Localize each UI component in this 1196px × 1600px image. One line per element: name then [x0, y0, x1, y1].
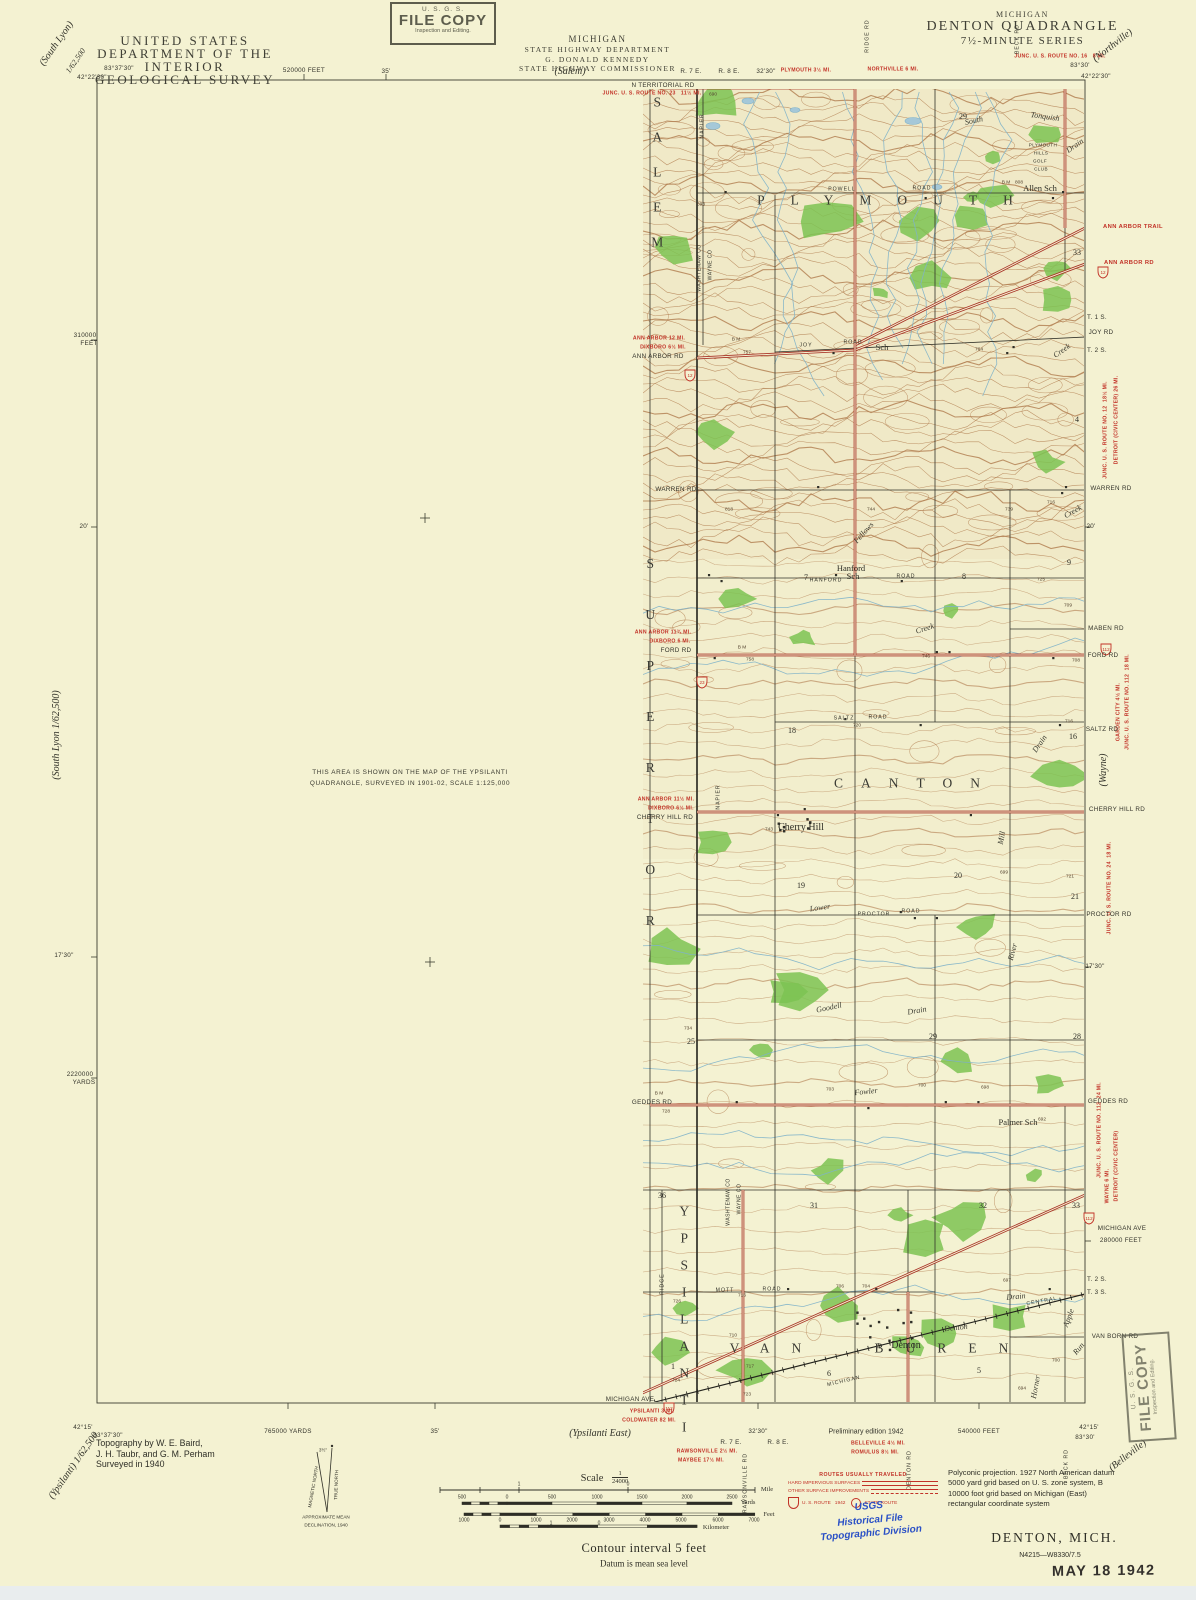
- map-label-1: 1: [550, 1522, 553, 1527]
- map-label-692: 692: [1038, 1119, 1046, 1124]
- map-label-ann-arbor-12-mi-: ANN ARBOR 12 MI.: [633, 336, 685, 341]
- legend-solid-line: [862, 1481, 938, 1486]
- map-label-maben-rd: MABEN RD: [1088, 626, 1124, 632]
- map-label-7000: 7000: [748, 1519, 759, 1524]
- map-label--ypsilanti-1-62-500: (Ypsilanti) 1/62,500: [47, 1431, 101, 1502]
- map-label-35-: 35': [381, 69, 390, 75]
- map-label-33: 33: [1072, 1202, 1080, 1210]
- map-label-maybee-17-mi-: MAYBEE 17½ MI.: [678, 1458, 724, 1463]
- map-label-van-buren: VAN BUREN: [730, 1341, 1031, 1355]
- map-label-kilometer: Kilometer: [703, 1525, 729, 1532]
- map-sheet: 122312112112112 83°37'30"42°22'30"520000…: [0, 0, 1196, 1600]
- map-label-698: 698: [981, 1087, 989, 1092]
- agency-header: UNITED STATES DEPARTMENT OF THE INTERIOR…: [70, 34, 300, 86]
- map-label-694: 694: [1018, 1388, 1026, 1393]
- map-label-83-30-: 83°30': [1070, 63, 1090, 69]
- map-label-warren-rd: WARREN RD: [1090, 486, 1131, 492]
- map-label-3000: 3000: [603, 1519, 614, 1524]
- map-label-b-m: B M: [655, 1093, 664, 1098]
- map-label-michigan: MICHIGAN: [827, 1376, 861, 1389]
- map-label-ford-rd: FORD RD: [1088, 653, 1119, 659]
- map-labels-layer: 83°37'30"42°22'30"520000 FEET35'(Salem)R…: [0, 0, 1196, 1600]
- map-label-n-territorial-rd: N TERRITORIAL RD: [631, 83, 694, 89]
- map-label-690: 690: [709, 94, 717, 99]
- map-label-723: 723: [743, 1394, 751, 1399]
- map-label-ypsilanti: YPSILANTI: [677, 1204, 691, 1447]
- scale-fraction: 1 24000: [612, 1470, 628, 1485]
- map-label-true-north: TRUE NORTH: [334, 1470, 340, 1500]
- map-label-road: ROAD: [763, 1287, 782, 1292]
- map-label-710: 710: [729, 1335, 737, 1340]
- map-label-19: 19: [797, 882, 805, 890]
- map-label-1500: 1500: [636, 1496, 647, 1501]
- map-label-746: 746: [922, 656, 930, 661]
- map-label-romulus-8-mi-: ROMULUS 8½ MI.: [851, 1450, 899, 1455]
- map-label-17-30-: 17'30": [54, 953, 73, 959]
- map-label-500: 500: [548, 1496, 556, 1501]
- map-label-t-1-s-: T. 1 S.: [1087, 315, 1107, 321]
- map-label-ann-arbor-trail: ANN ARBOR TRAIL: [1103, 225, 1163, 231]
- map-label-mill: Mill: [997, 831, 1007, 846]
- map-label-716: 716: [738, 1295, 746, 1300]
- map-label-plymouth: PLYMOUTH: [1029, 144, 1057, 149]
- map-label-joy-rd: JOY RD: [1089, 330, 1114, 336]
- map-label-500: 500: [458, 1496, 466, 1501]
- sheet-id: N4215—W8330/7.5: [985, 1552, 1115, 1559]
- map-label-allen-sch: Allen Sch: [1023, 184, 1057, 193]
- scan-edge: [0, 1586, 1196, 1600]
- map-label-napier: NAPIER: [716, 784, 721, 809]
- map-label-16: 16: [1069, 733, 1077, 741]
- map-label-cherry-hill: Cherry Hill: [778, 823, 824, 833]
- legend-hard-surfaces: HARD IMPERVIOUS SURFACES: [788, 1481, 860, 1486]
- map-label-joy: JOY: [799, 343, 812, 348]
- map-label-junc-u-s-route-no-112-24: JUNC. U. S. ROUTE NO. 112 24 MI.: [1097, 1082, 1102, 1178]
- map-label-21: 21: [1071, 893, 1079, 901]
- map-label-758: 758: [746, 659, 754, 664]
- map-label-dixboro-6-mi-: DIXBORO 6 MI.: [649, 639, 690, 644]
- map-label-hanford: HANFORD: [810, 578, 843, 583]
- map-label--ypsilanti-east-: (Ypsilanti East): [569, 1429, 631, 1439]
- state-line: MICHIGAN: [480, 34, 715, 45]
- map-label-36: 36: [658, 1192, 666, 1200]
- map-label-declination-1940: DECLINATION, 1940: [304, 1524, 347, 1529]
- map-label-ypsilanti-3-mi-: YPSILANTI 3 MI.: [630, 1409, 675, 1414]
- map-label-junc-u-s-route-no-24-18-: JUNC. U. S. ROUTE NO. 24 18 MI.: [1107, 842, 1112, 935]
- map-label-denton: Denton: [891, 1341, 920, 1351]
- agency-line: GEOLOGICAL SURVEY: [70, 73, 300, 86]
- map-label-junc-u-s-route-no-112-18: JUNC. U. S. ROUTE NO. 112 18 MI.: [1125, 654, 1130, 750]
- map-label-ford-rd: FORD RD: [661, 648, 692, 654]
- map-label-1000: 1000: [530, 1519, 541, 1524]
- map-label-mile: Mile: [761, 1487, 773, 1494]
- map-label-road: ROAD: [897, 574, 916, 579]
- map-label-0: 0: [499, 1519, 502, 1524]
- map-label-20-: 20': [1086, 524, 1095, 530]
- map-label-720: 720: [853, 725, 861, 730]
- map-label-drain: Drain: [1006, 1292, 1026, 1302]
- map-label-road: ROAD: [844, 340, 863, 345]
- map-label-proctor-rd: PROCTOR RD: [1086, 912, 1131, 918]
- map-label-washtenaw-co: WASHTENAW CO: [698, 244, 703, 292]
- map-label-plymouth: PLYMOUTH: [757, 193, 1039, 207]
- map-label-700: 700: [1052, 1360, 1060, 1365]
- map-label-mott: MOTT: [716, 1288, 735, 1293]
- map-label-725: 725: [1037, 579, 1045, 584]
- us-route-shield-icon: [788, 1497, 799, 1509]
- map-label-river: River: [1007, 943, 1019, 962]
- map-label-hills: HILLS: [1034, 152, 1049, 157]
- map-label-saltz: SALTZ: [834, 716, 855, 721]
- map-label-706: 706: [836, 1286, 844, 1291]
- map-label-plymouth-3-mi-: PLYMOUTH 3½ MI.: [781, 68, 831, 73]
- map-label-29: 29: [959, 113, 967, 121]
- map-label-creek: Creek: [1052, 342, 1072, 359]
- map-label-4000: 4000: [639, 1519, 650, 1524]
- map-label-scale: Scale: [581, 1474, 604, 1485]
- map-label-powell: POWELL: [828, 187, 856, 192]
- map-label-1: 1: [671, 1363, 675, 1371]
- map-label-palmer-sch: Palmer Sch: [999, 1118, 1038, 1127]
- map-label-approximate-mean: APPROXIMATE MEAN: [302, 1516, 349, 1521]
- state-header: MICHIGAN STATE HIGHWAY DEPARTMENT G. DON…: [480, 34, 715, 73]
- map-label-central: CENTRAL: [1026, 1297, 1058, 1308]
- map-label-michigan-ave: MICHIGAN AVE: [606, 1397, 655, 1403]
- map-label-golf: GOLF: [1033, 160, 1047, 165]
- map-label-28: 28: [1073, 1033, 1081, 1041]
- map-label-693: 693: [697, 204, 705, 209]
- map-label-canton: CANTON: [834, 776, 998, 790]
- map-label-geddes-rd: GEDDES RD: [632, 1100, 672, 1106]
- map-label-wayne-6-mi-: WAYNE 6 MI.: [1105, 1169, 1110, 1204]
- map-label-apple: Apple: [1062, 1308, 1076, 1328]
- topography-credit: Topography by W. E. Baird, J. H. Taubr, …: [96, 1438, 215, 1470]
- map-label-drain: Drain: [907, 1005, 927, 1016]
- map-label-2500: 2500: [726, 1496, 737, 1501]
- map-label-belleville-4-mi-: BELLEVILLE 4½ MI.: [851, 1441, 905, 1446]
- map-label-r-8-e-: R. 8 E.: [767, 1440, 788, 1446]
- legend-title: ROUTES USUALLY TRAVELED: [788, 1472, 938, 1478]
- map-label-creek: Creek: [915, 622, 935, 635]
- map-label-yards: YARDS: [73, 1080, 96, 1086]
- map-label-724: 724: [672, 1380, 680, 1385]
- map-label-280000-feet: 280000 FEET: [1100, 1238, 1142, 1244]
- map-label-716: 716: [1047, 502, 1055, 507]
- map-label-808: 808: [1015, 182, 1023, 187]
- map-label-horner: Horner: [1030, 1375, 1042, 1400]
- map-label-drain: Drain: [1031, 734, 1049, 754]
- map-label-700: 700: [918, 1085, 926, 1090]
- map-label-t-2-s-: T. 2 S.: [1087, 1277, 1107, 1283]
- map-label-743: 743: [765, 829, 773, 834]
- map-label-42-15-: 42°15': [73, 1425, 93, 1431]
- map-label-detroit-civic-center-: DETROIT (CIVIC CENTER): [1114, 1131, 1119, 1202]
- map-label-5: 5: [977, 1367, 981, 1375]
- quad-name: DENTON QUADRANGLE: [905, 19, 1140, 35]
- map-label-feet: FEET: [80, 341, 97, 347]
- map-label-warren-rd: WARREN RD: [655, 487, 696, 493]
- map-label-michigan-ave: MICHIGAN AVE: [1098, 1226, 1147, 1232]
- map-label-2000: 2000: [681, 1496, 692, 1501]
- map-label-764: 764: [975, 349, 983, 354]
- map-label-feet: Feet: [763, 1512, 774, 1519]
- quad-state: MICHIGAN: [905, 10, 1140, 19]
- state-line: G. DONALD KENNEDY: [480, 55, 715, 64]
- quad-series: 7½-MINUTE SERIES: [905, 35, 1140, 47]
- map-label-junc-u-s-route-no-12-18-: JUNC. U. S. ROUTE NO. 12 18½ MI.: [1103, 381, 1108, 479]
- map-label-728: 728: [662, 1111, 670, 1116]
- map-label-rawsonville-2-mi-: RAWSONVILLE 2½ MI.: [677, 1449, 738, 1454]
- map-label-ann-arbor-11-mi-: ANN ARBOR 11¾ MI.: [635, 630, 692, 635]
- map-label-dixboro-6-mi-: DIXBORO 6½ MI.: [648, 806, 694, 811]
- map-label--south-lyon-1-62-500-: (South Lyon 1/62,500): [52, 690, 62, 779]
- map-label-35-: 35': [430, 1429, 439, 1435]
- map-label-road: ROAD: [902, 909, 921, 914]
- map-label-ann-arbor-rd: ANN ARBOR RD: [1104, 261, 1154, 267]
- map-label-r-8-e-: R. 8 E.: [718, 69, 739, 75]
- map-label-0: 0: [598, 1522, 601, 1527]
- map-label-yards: Yards: [741, 1500, 756, 1507]
- quadrangle-header: MICHIGAN DENTON QUADRANGLE 7½-MINUTE SER…: [905, 10, 1140, 47]
- map-label-napier: NAPIER: [700, 113, 705, 138]
- map-label-dixboro-6-mi-: DIXBORO 6½ MI.: [640, 345, 686, 350]
- map-label-6000: 6000: [712, 1519, 723, 1524]
- map-label--wayne-: (Wayne): [1099, 754, 1109, 787]
- map-label-denton: Denton: [944, 1323, 968, 1333]
- map-label-t-2-s-: T. 2 S.: [1087, 348, 1107, 354]
- map-label-creek: Creek: [1063, 504, 1083, 520]
- map-label-r-7-e-: R. 7 E.: [720, 1440, 741, 1446]
- map-label-proctor: PROCTOR: [858, 912, 891, 917]
- map-label-wayne-co: WAYNE CO: [738, 1184, 743, 1215]
- map-label-t-3-s-: T. 3 S.: [1087, 1290, 1107, 1296]
- map-label-2000: 2000: [566, 1519, 577, 1524]
- map-label-9: 9: [1067, 559, 1071, 567]
- state-line: STATE HIGHWAY COMMISSIONER: [480, 64, 715, 73]
- map-label-3-: 3½°: [319, 1449, 327, 1454]
- map-label-run: Run: [1072, 1341, 1086, 1356]
- map-label-20-: 20': [79, 524, 88, 530]
- file-copy-stamp: U. S. G. S. FILE COPY Inspection and Edi…: [390, 2, 496, 45]
- map-label-club: CLUB: [1034, 168, 1048, 173]
- map-label-b-m: B M: [732, 339, 741, 344]
- map-label-south: South: [964, 115, 983, 127]
- map-label-drain: Drain: [1065, 137, 1085, 155]
- map-label-31: 31: [810, 1202, 818, 1210]
- map-label-salem: SALEM: [650, 95, 664, 270]
- map-label-fellows: Fellows: [853, 521, 876, 545]
- map-label-ridge-rd: RIDGE RD: [865, 19, 870, 52]
- map-label-33: 33: [1073, 249, 1081, 257]
- map-label-757: 757: [743, 352, 751, 357]
- map-label-739: 739: [1005, 509, 1013, 514]
- map-label-709: 709: [1064, 605, 1072, 610]
- map-label-coldwater-82-mi-: COLDWATER 82 MI.: [622, 1418, 676, 1423]
- map-label-2220000: 2220000: [67, 1072, 94, 1078]
- map-label-6: 6: [827, 1370, 831, 1378]
- legend-other-surfaces: OTHER SURFACE IMPROVEMENTS: [788, 1489, 869, 1494]
- map-label-road: ROAD: [869, 715, 888, 720]
- map-label-washtenaw-co: WASHTENAW CO: [727, 1178, 732, 1226]
- map-label-datum-is-mean-sea-level: Datum is mean sea level: [600, 1560, 688, 1569]
- map-label-697: 697: [1003, 1280, 1011, 1285]
- map-label-5000: 5000: [675, 1519, 686, 1524]
- map-label-superior: SUPERIOR: [643, 556, 657, 964]
- map-label-708: 708: [1072, 660, 1080, 665]
- state-line: STATE HIGHWAY DEPARTMENT: [480, 45, 715, 54]
- map-label-road: ROAD: [913, 186, 932, 191]
- map-label-sch: Sch: [876, 343, 889, 352]
- map-label-4: 4: [1075, 416, 1079, 424]
- map-label-703: 703: [826, 1089, 834, 1094]
- map-label-32: 32: [979, 1202, 987, 1210]
- map-label-716: 716: [1065, 721, 1073, 726]
- map-label-704: 704: [862, 1286, 870, 1291]
- map-label-1: 1: [518, 1483, 521, 1488]
- inset-note: THIS AREA IS SHOWN ON THE MAP OF THE YPS…: [300, 768, 520, 790]
- map-label-magnetic-north: MAGNETIC NORTH: [308, 1466, 320, 1508]
- date-stamp: MAY 18 1942: [1052, 1562, 1192, 1580]
- map-label-18: 18: [788, 727, 796, 735]
- map-label-734: 734: [684, 1028, 692, 1033]
- map-label-1000: 1000: [458, 1519, 469, 1524]
- map-label-preliminary-edition-1942: Preliminary edition 1942: [828, 1429, 903, 1436]
- map-label-goodell: Goodell: [816, 1001, 843, 1014]
- legend-dash-line: [871, 1489, 938, 1494]
- map-label-contour-interval-5-feet: Contour interval 5 feet: [581, 1542, 706, 1555]
- map-label-detroit-civic-center-26-: DETROIT (CIVIC CENTER) 26 MI.: [1114, 376, 1119, 465]
- projection-note: Polyconic projection. 1927 North America…: [948, 1468, 1118, 1509]
- map-label-721: 721: [1066, 876, 1074, 881]
- map-label-saltz-rd: SALTZ RD: [1086, 727, 1118, 733]
- map-label-310000: 310000: [74, 333, 97, 339]
- map-label-northville-6-mi-: NORTHVILLE 6 MI.: [868, 67, 919, 72]
- map-label-ann-arbor-rd: ANN ARBOR RD: [632, 354, 684, 360]
- map-label-ridge: RIDGE: [660, 1273, 665, 1294]
- map-label-29: 29: [929, 1033, 937, 1041]
- map-label-ann-arbor-11-mi-: ANN ARBOR 11½ MI.: [638, 797, 695, 802]
- map-label-lower: Lower: [809, 903, 830, 914]
- map-label-42-15-: 42°15': [1079, 1425, 1099, 1431]
- map-label-0: 0: [506, 1496, 509, 1501]
- map-label-25: 25: [687, 1038, 695, 1046]
- map-label-818: 818: [725, 509, 733, 514]
- agency-line: DEPARTMENT OF THE INTERIOR: [70, 47, 300, 73]
- map-label-7: 7: [804, 574, 808, 582]
- map-label-tonquish: Tonquish: [1030, 111, 1060, 123]
- map-label-wayne-co: WAYNE CO: [709, 250, 714, 281]
- file-copy-stamp-side: U. S. G. S. FILE COPY Inspection and Edi…: [1121, 1331, 1176, 1442]
- map-label-sch: Sch: [847, 572, 860, 581]
- map-label-699: 699: [1000, 872, 1008, 877]
- map-label-717: 717: [746, 1366, 754, 1371]
- map-label-17-30-: 17'30": [1085, 964, 1104, 970]
- map-label-fowler: Fowler: [854, 1087, 878, 1097]
- map-label-726: 726: [673, 1301, 681, 1306]
- map-label-geddes-rd: GEDDES RD: [1088, 1099, 1128, 1105]
- map-label-1000: 1000: [591, 1496, 602, 1501]
- map-name: DENTON, MICH.: [982, 1530, 1127, 1546]
- map-label-744: 744: [867, 509, 875, 514]
- map-label-540000-feet: 540000 FEET: [958, 1429, 1000, 1435]
- map-label-20: 20: [954, 872, 962, 880]
- map-label-32-30-: 32'30": [748, 1429, 767, 1435]
- map-label-b-m: B M: [1002, 182, 1011, 187]
- map-label-42-22-30-: 42°22'30": [1081, 74, 1111, 80]
- map-label-83-30-: 83°30': [1075, 1435, 1095, 1441]
- map-label-cherry-hill-rd: CHERRY HILL RD: [1089, 807, 1145, 813]
- map-label-765000-yards: 765000 YARDS: [264, 1429, 311, 1435]
- map-label-b-m: B M: [738, 647, 747, 652]
- map-label-8: 8: [962, 573, 966, 581]
- map-label-cherry-hill-rd: CHERRY HILL RD: [637, 815, 693, 821]
- map-label-32-30-: 32'30": [756, 69, 775, 75]
